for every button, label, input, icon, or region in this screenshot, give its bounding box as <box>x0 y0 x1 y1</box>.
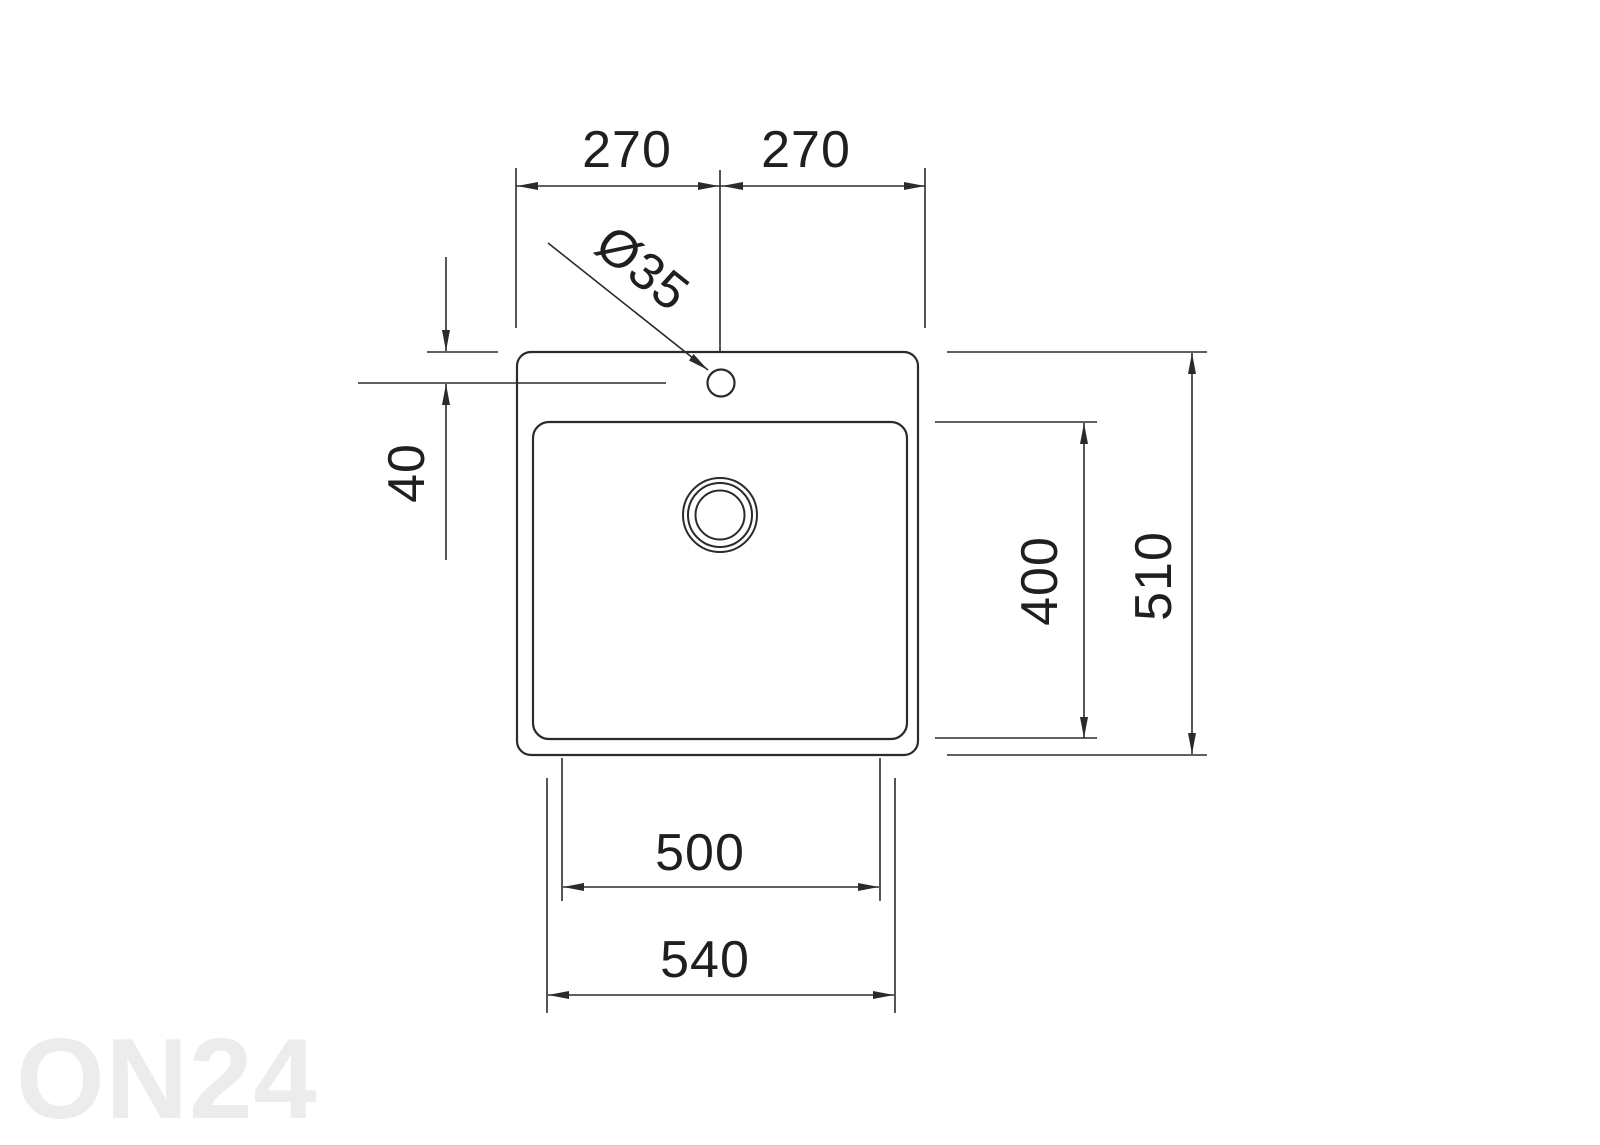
dimension-outer-depth-510: 510 <box>947 352 1207 755</box>
dimension-label-bowl-depth: 400 <box>1011 536 1069 626</box>
dimension-label-bowl-width: 500 <box>655 824 745 882</box>
dimension-label-top-left: 270 <box>582 121 672 179</box>
drain-outer-ring <box>683 478 757 552</box>
arrowhead-left <box>563 883 584 891</box>
arrowhead-up <box>1188 353 1196 374</box>
sink-plan-view <box>517 352 918 755</box>
dimension-outer-width-540: 540 <box>547 778 895 1013</box>
dimension-bowl-depth-400: 400 <box>935 422 1097 738</box>
leader-arrowhead <box>689 354 708 370</box>
sink-bowl-edge <box>533 422 907 739</box>
dimension-hole-offset-40: 40 <box>358 257 666 560</box>
arrowhead-left <box>517 182 538 190</box>
arrowhead-right <box>698 182 719 190</box>
drain-middle-ring <box>688 483 752 547</box>
dimension-label-outer-depth: 510 <box>1125 531 1183 621</box>
arrowhead-left <box>548 991 569 999</box>
faucet-hole <box>708 370 735 397</box>
sink-dimension-drawing: 270 270 Ø35 40 400 <box>0 0 1600 1145</box>
dimension-top-270-pair: 270 270 <box>516 121 925 352</box>
sink-outer-edge <box>517 352 918 755</box>
dimension-bowl-width-500: 500 <box>562 758 880 901</box>
drain-inner-ring <box>696 491 745 540</box>
arrowhead-right <box>858 883 879 891</box>
arrowhead-down <box>1188 733 1196 754</box>
dimension-hole-diameter: Ø35 <box>548 215 708 370</box>
arrowhead-down <box>1080 717 1088 738</box>
arrowhead-right-2 <box>904 182 925 190</box>
arrowhead-down <box>442 330 450 351</box>
technical-drawing-canvas: 270 270 Ø35 40 400 <box>0 0 1600 1145</box>
arrowhead-right <box>873 991 894 999</box>
dimension-label-hole-diameter: Ø35 <box>585 215 700 323</box>
on24-watermark: ON24 <box>16 1014 318 1145</box>
dimension-label-hole-offset: 40 <box>378 443 436 503</box>
arrowhead-up <box>1080 423 1088 444</box>
arrowhead-left-2 <box>722 182 743 190</box>
drain-outlet <box>683 478 757 552</box>
dimension-label-outer-width: 540 <box>660 931 750 989</box>
dimension-label-top-right: 270 <box>761 121 851 179</box>
arrowhead-up <box>442 384 450 405</box>
